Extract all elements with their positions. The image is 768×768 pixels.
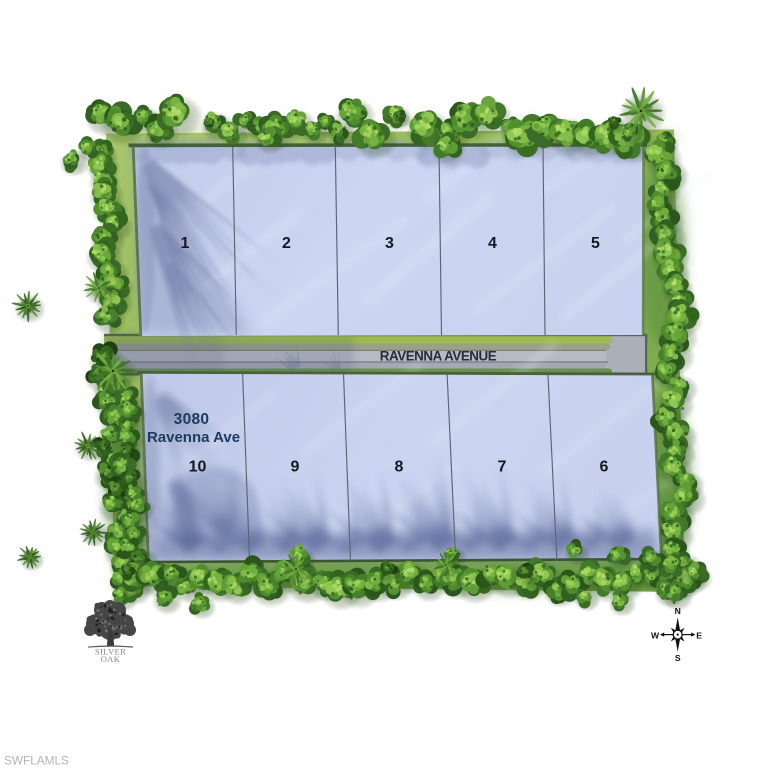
svg-text:Ravenna Ave: Ravenna Ave: [147, 429, 240, 446]
svg-text:9: 9: [291, 459, 300, 476]
svg-text:10: 10: [189, 459, 207, 476]
svg-text:5: 5: [591, 235, 600, 252]
svg-text:7: 7: [498, 459, 507, 476]
svg-text:3080: 3080: [174, 411, 210, 428]
svg-text:2: 2: [282, 235, 291, 252]
svg-text:3: 3: [385, 235, 394, 252]
svg-text:1: 1: [181, 235, 190, 252]
svg-text:8: 8: [395, 459, 404, 476]
svg-text:6: 6: [600, 459, 609, 476]
svg-text:RAVENNA AVENUE: RAVENNA AVENUE: [380, 349, 497, 364]
svg-text:4: 4: [488, 235, 497, 252]
